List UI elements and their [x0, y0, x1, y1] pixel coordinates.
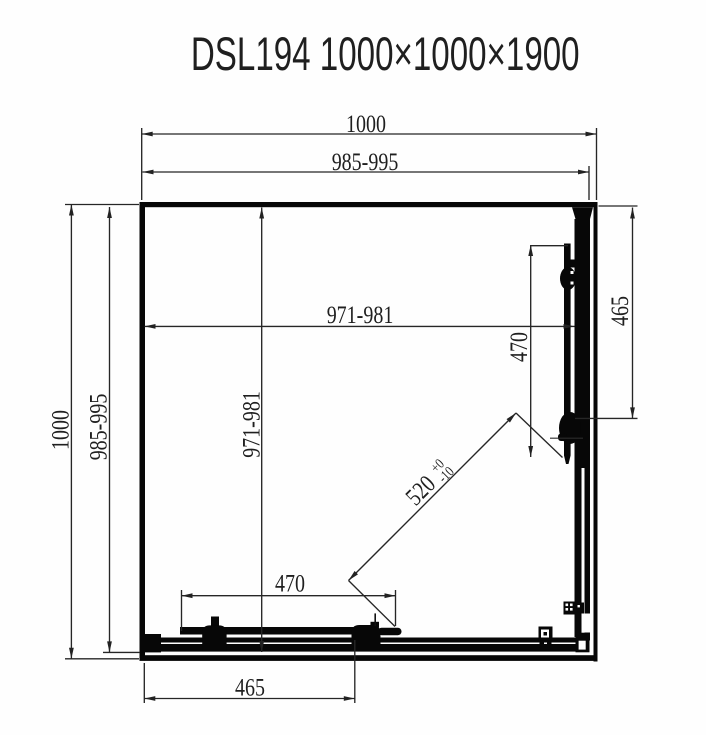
svg-text:DSL194 1000×1000×1900: DSL194 1000×1000×1900: [191, 27, 580, 80]
svg-text:971-981: 971-981: [237, 391, 265, 458]
svg-text:465: 465: [235, 673, 265, 701]
svg-text:470: 470: [275, 569, 305, 597]
svg-text:985-995: 985-995: [332, 148, 399, 176]
svg-text:971-981: 971-981: [327, 301, 394, 329]
svg-text:520: 520: [400, 470, 441, 511]
svg-text:465: 465: [606, 296, 634, 326]
svg-text:1000: 1000: [346, 110, 386, 138]
svg-text:985-995: 985-995: [84, 394, 112, 461]
svg-text:470: 470: [505, 332, 533, 362]
svg-text:1000: 1000: [46, 410, 74, 450]
